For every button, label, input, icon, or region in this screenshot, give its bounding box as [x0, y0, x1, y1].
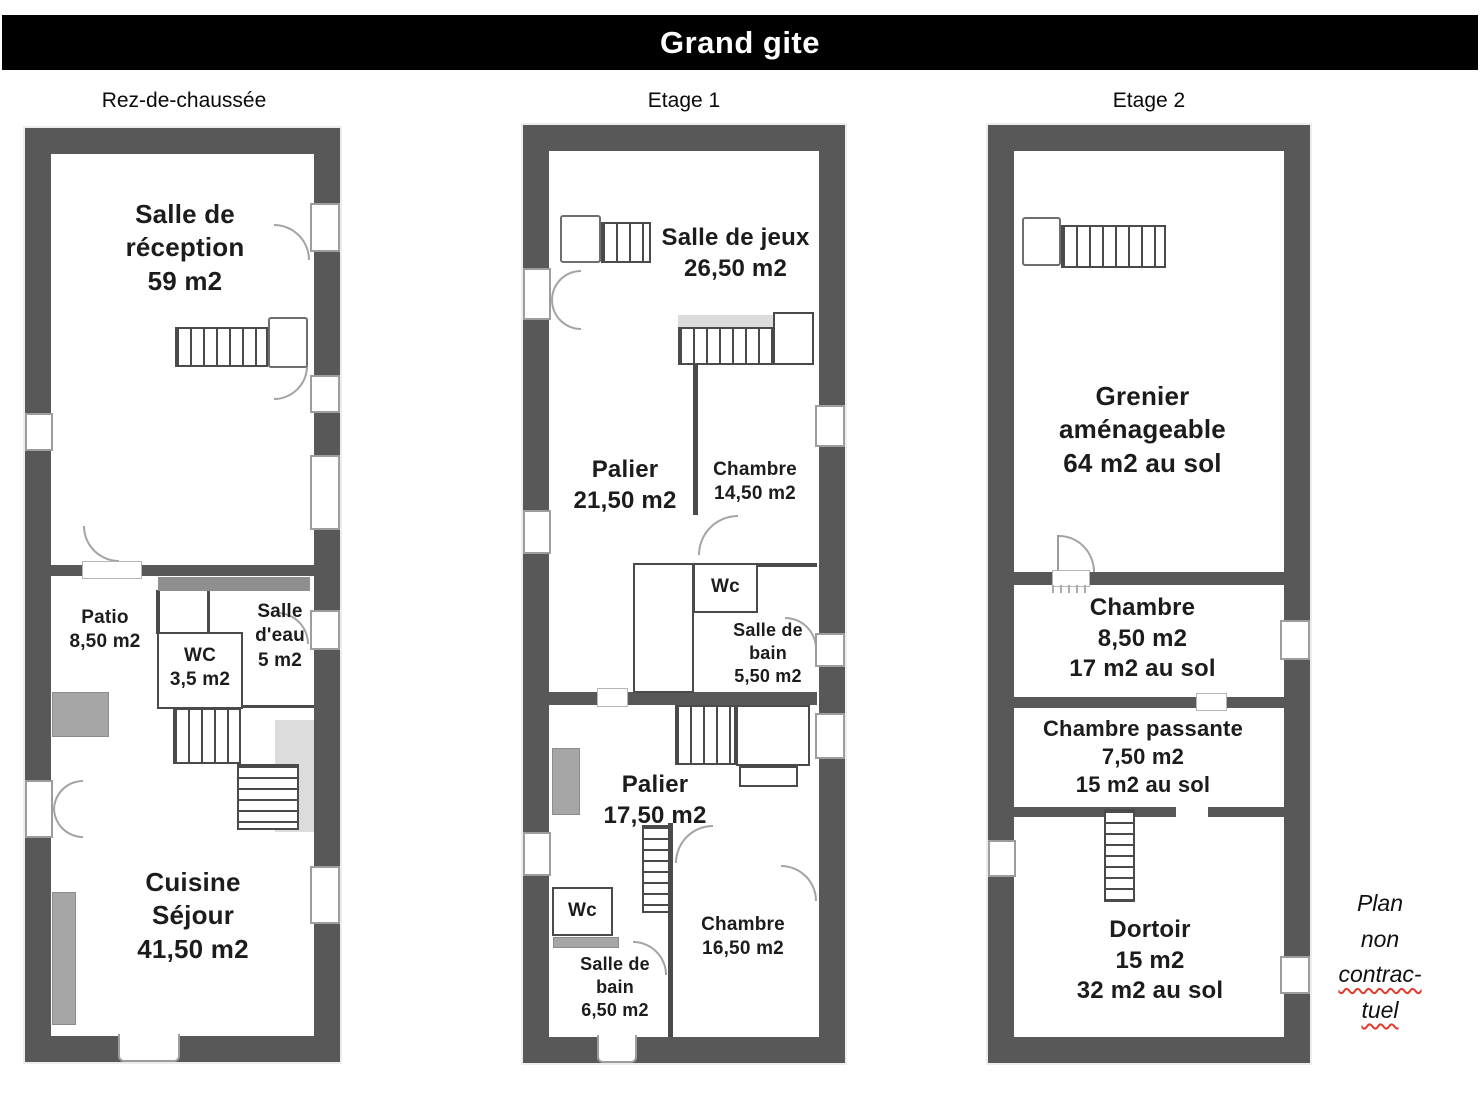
door-opening: [1196, 693, 1227, 711]
room-label-cuisine: Cuisine Séjour 41,50 m2: [107, 866, 279, 966]
room-label-reception: Salle de réception 59 m2: [100, 198, 270, 298]
room-area-sol: 32 m2 au sol: [1077, 976, 1223, 1007]
room-label-salle-jeux: Salle de jeux 26,50 m2: [653, 223, 818, 284]
room-name: Palier: [592, 455, 659, 486]
room-name: Salle de bain: [730, 619, 806, 665]
disclaimer-note: Plan non contrac- tuel: [1318, 886, 1442, 1029]
room-name: Salle de réception: [100, 198, 270, 265]
door-opening: [82, 561, 142, 579]
stairs: [237, 764, 299, 830]
room-label-palier2: Palier 17,50 m2: [575, 770, 735, 831]
floor-label-etage1: Etage 1: [523, 88, 845, 114]
title-bar: Grand gite: [2, 15, 1478, 70]
interior-wall: [1014, 807, 1176, 817]
window: [310, 866, 340, 924]
room-name: WC: [184, 644, 216, 668]
stair-landing: [1022, 217, 1061, 266]
room-area: 7,50 m2: [1102, 743, 1184, 771]
room-name: Salle de bain: [577, 953, 653, 999]
stairs: [678, 327, 775, 365]
stairs: [175, 327, 268, 367]
room-area: 5,50 m2: [734, 665, 801, 688]
room-area: 15 m2: [1115, 946, 1184, 977]
interior-wall: [207, 591, 210, 633]
stairs: [1104, 809, 1135, 902]
interior-wall: [1014, 697, 1284, 708]
note-line: Plan: [1318, 886, 1442, 922]
window: [310, 203, 340, 252]
interior-wall: [549, 692, 817, 705]
room-area: 21,50 m2: [573, 486, 676, 517]
room-area: 64 m2 au sol: [1063, 447, 1221, 480]
room-area: 8,50 m2: [1098, 624, 1187, 655]
room-label-salle-eau: Salle d'eau 5 m2: [247, 600, 313, 673]
stair-landing: [773, 312, 814, 365]
room-area-sol: 15 m2 au sol: [1076, 771, 1210, 799]
page-title: Grand gite: [660, 25, 820, 61]
room-label-chambre850: Chambre 8,50 m2 17 m2 au sol: [1050, 593, 1235, 685]
room-label-grenier: Grenier aménageable 64 m2 au sol: [1050, 380, 1235, 480]
window: [310, 610, 340, 650]
stairs: [642, 825, 670, 913]
counter: [158, 577, 310, 591]
floor-label-etage2: Etage 2: [988, 88, 1310, 114]
page: Grand gite Rez-de-chaussée Etage 1 Etage…: [0, 0, 1480, 1106]
stair-landing: [736, 705, 810, 766]
room-label-chambre1: Chambre 14,50 m2: [695, 458, 815, 507]
door-threshold: [1052, 585, 1090, 593]
stair-landing: [739, 766, 798, 787]
closet-room: [633, 563, 694, 693]
stairs: [1061, 225, 1166, 268]
window: [815, 405, 845, 447]
note-line-misspelled: contrac-: [1318, 957, 1442, 993]
room-label-chambre2: Chambre 16,50 m2: [677, 913, 809, 962]
floor-label-rdc: Rez-de-chaussée: [25, 88, 343, 114]
door-opening: [597, 688, 628, 707]
room-label-palier1: Palier 21,50 m2: [555, 455, 695, 516]
stair-landing: [268, 317, 308, 368]
interior-wall: [1208, 807, 1284, 817]
room-area: 17,50 m2: [603, 801, 706, 832]
room-name: Chambre: [701, 913, 785, 937]
floorplan-etage1: Salle de jeux 26,50 m2 Palier 21,50 m2 C…: [523, 125, 845, 1063]
window: [310, 455, 340, 530]
room-area: 16,50 m2: [702, 937, 784, 961]
room-area: 41,50 m2: [137, 933, 248, 966]
window: [523, 510, 551, 554]
room-label-sdb1: Salle de bain 5,50 m2: [730, 619, 806, 688]
furniture: [52, 692, 109, 737]
room-area: 26,50 m2: [684, 254, 787, 285]
window: [1280, 956, 1310, 994]
room-name: Salle de jeux: [661, 223, 809, 254]
room-name: Grenier aménageable: [1050, 380, 1235, 447]
room-label-dortoir: Dortoir 15 m2 32 m2 au sol: [1060, 915, 1240, 1007]
room-area: 3,5 m2: [170, 668, 230, 692]
stair-landing-pad: [678, 315, 775, 327]
room-name: Chambre: [1090, 593, 1195, 624]
stair-landing: [560, 215, 601, 263]
room-name: Wc: [711, 575, 740, 599]
room-area: 59 m2: [148, 265, 223, 298]
entry-door: [118, 1034, 180, 1062]
room-name: Wc: [568, 899, 597, 923]
window: [310, 375, 340, 413]
interior-wall: [242, 705, 314, 708]
room-name: Salle d'eau: [247, 600, 313, 649]
room-area: 6,50 m2: [581, 999, 648, 1022]
room-area: 8,50 m2: [69, 630, 140, 654]
room-name: Dortoir: [1109, 915, 1190, 946]
window: [25, 413, 53, 451]
stairs: [173, 708, 241, 764]
room-name: Chambre passante: [1043, 715, 1243, 743]
window: [815, 713, 845, 759]
room-label-patio: Patio 8,50 m2: [49, 606, 161, 655]
furniture: [52, 892, 76, 1025]
room-label-wc-haut: Wc: [693, 575, 758, 599]
room-name: Palier: [622, 770, 689, 801]
room-label-sdb2: Salle de bain 6,50 m2: [577, 953, 653, 1022]
window: [815, 633, 845, 667]
window: [1280, 620, 1310, 660]
note-line-misspelled: tuel: [1318, 993, 1442, 1029]
room-area: 5 m2: [258, 649, 302, 673]
furniture: [553, 937, 619, 948]
room-label-wc: WC 3,5 m2: [157, 644, 243, 693]
stairs: [601, 222, 651, 263]
floorplan-etage2: Grenier aménageable 64 m2 au sol Chambre…: [988, 125, 1310, 1063]
window: [25, 780, 53, 838]
door-opening: [597, 1035, 637, 1063]
note-line: non: [1318, 922, 1442, 958]
room-name: Cuisine Séjour: [107, 866, 279, 933]
room-name: Chambre: [713, 458, 797, 482]
room-area: 14,50 m2: [714, 482, 796, 506]
room-label-chambre-passante: Chambre passante 7,50 m2 15 m2 au sol: [1018, 715, 1268, 799]
room-area-sol: 17 m2 au sol: [1069, 654, 1215, 685]
floorplan-rdc: Salle de réception 59 m2 Patio 8,50 m2 W…: [25, 128, 340, 1062]
room-name: Patio: [81, 606, 128, 630]
window: [988, 840, 1016, 877]
room-label-wc-bas: Wc: [552, 899, 613, 923]
window: [523, 268, 551, 320]
stairs: [675, 705, 736, 765]
window: [523, 832, 551, 876]
